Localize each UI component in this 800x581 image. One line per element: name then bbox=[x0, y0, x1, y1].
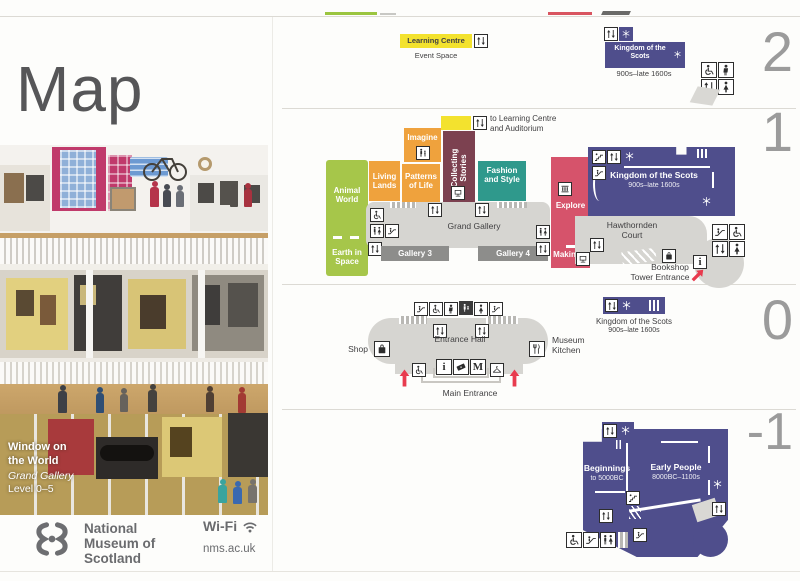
museum-map-leaflet: Map bbox=[0, 0, 800, 581]
iron-column bbox=[86, 270, 93, 362]
learning-centre-label: Learning Centre bbox=[400, 37, 472, 46]
shop-label: Shop bbox=[338, 345, 368, 355]
imagine-label: Imagine bbox=[404, 133, 441, 142]
visitor-figure bbox=[248, 485, 257, 503]
map-wall-mark bbox=[705, 149, 707, 158]
snowflake-icon bbox=[620, 299, 633, 312]
kingdom-l1-label: Kingdom of the Scots bbox=[598, 171, 710, 181]
toilets-icon bbox=[370, 224, 384, 238]
kingdom-l0-label: Kingdom of the Scots bbox=[587, 317, 681, 326]
visitor-figure bbox=[150, 187, 159, 207]
info-icon: i bbox=[436, 359, 452, 375]
snowflake-icon bbox=[619, 27, 633, 41]
page-top-edge bbox=[0, 16, 800, 17]
visitor-figure bbox=[163, 190, 171, 207]
main-entrance-arrow bbox=[508, 366, 521, 390]
snowflake-icon bbox=[673, 50, 682, 59]
scan-artifact bbox=[548, 12, 592, 15]
motorbike-exhibit bbox=[100, 445, 154, 461]
stair-landing-shape bbox=[690, 86, 721, 105]
lift-icon bbox=[473, 116, 487, 130]
brand-name-line3: Scotland bbox=[84, 551, 155, 566]
snowflake-icon bbox=[619, 424, 632, 437]
photo-detail bbox=[228, 413, 268, 477]
map-wall-mark bbox=[697, 149, 699, 158]
main-entrance-arrow bbox=[398, 366, 411, 390]
photo-caption-title-line2: the World bbox=[8, 455, 59, 469]
photo-caption-title-line1: Window on bbox=[8, 441, 67, 455]
gallery-3-label: Gallery 3 bbox=[381, 249, 449, 258]
lift-icon bbox=[599, 509, 613, 523]
scan-artifact bbox=[380, 13, 396, 15]
map-wall-line bbox=[661, 441, 698, 443]
wheelchair-icon bbox=[701, 62, 717, 78]
photo-caption-level: Level 0–5 bbox=[8, 483, 54, 496]
bridge-hatch bbox=[497, 202, 527, 208]
map-wall-mark bbox=[657, 300, 659, 311]
map-wall-line bbox=[708, 480, 710, 495]
map-wall-line bbox=[712, 172, 714, 188]
stairs-icon bbox=[592, 150, 606, 164]
iron-column bbox=[198, 270, 205, 362]
lift-icon bbox=[604, 27, 618, 41]
scan-artifact bbox=[601, 11, 631, 15]
and-auditorium-note: and Auditorium bbox=[490, 124, 602, 133]
lift-icon bbox=[607, 150, 621, 164]
stairs-icon bbox=[626, 491, 640, 505]
beginnings-label: Beginnings bbox=[582, 464, 632, 474]
escalator-icon bbox=[414, 302, 428, 316]
bridge-hatch bbox=[399, 316, 427, 324]
entrance-hall-label: Entrance Hall bbox=[425, 335, 495, 345]
wheelchair-icon bbox=[429, 302, 443, 316]
fold-line bbox=[272, 17, 273, 571]
nms-logo bbox=[28, 518, 76, 560]
escalator-icon bbox=[489, 302, 503, 316]
map-wall-mark bbox=[566, 245, 575, 248]
visitor-figure bbox=[244, 189, 252, 207]
tickets-icon bbox=[453, 359, 469, 375]
floor1-number: 1 bbox=[735, 104, 793, 160]
stair-hatch bbox=[629, 506, 641, 519]
visitor-figure bbox=[148, 390, 157, 412]
escalator-icon bbox=[583, 532, 599, 548]
photo-detail bbox=[140, 295, 166, 329]
page-title: Map bbox=[16, 52, 144, 126]
mens-toilet-icon bbox=[444, 302, 458, 316]
wheelchair-icon bbox=[370, 208, 384, 222]
brand-name: National Museum of Scotland bbox=[84, 521, 155, 566]
brand-name-line2: Museum of bbox=[84, 536, 155, 551]
escalator-icon bbox=[633, 528, 647, 542]
gallery-floor bbox=[0, 384, 268, 414]
floor-minus1-number: -1 bbox=[728, 406, 793, 458]
map-wall-line bbox=[595, 491, 625, 493]
photo-detail bbox=[110, 187, 136, 211]
womens-toilet-icon bbox=[729, 241, 745, 257]
website-url: nms.ac.uk bbox=[203, 543, 255, 555]
bicycle-exhibit bbox=[140, 149, 192, 183]
lift-icon bbox=[536, 242, 550, 256]
lift-icon bbox=[712, 502, 726, 516]
lift-icon bbox=[603, 424, 617, 438]
toilets-icon bbox=[600, 532, 616, 548]
map-wall-line bbox=[708, 446, 710, 463]
lift-icon bbox=[368, 242, 382, 256]
photo-detail bbox=[26, 175, 44, 201]
visitor-figure bbox=[96, 393, 104, 413]
stair-hatch bbox=[616, 440, 623, 449]
map-wall-mark bbox=[701, 149, 703, 158]
floor2-number: 2 bbox=[735, 24, 793, 80]
photo-detail bbox=[198, 183, 214, 203]
visitor-figure bbox=[218, 485, 227, 503]
mens-toilet-icon bbox=[718, 62, 734, 78]
earth-in-space-label: Earth in Space bbox=[326, 248, 368, 266]
beginnings-era-label: to 5000BC bbox=[582, 475, 632, 483]
visitor-figure bbox=[238, 393, 246, 413]
stair-hatch bbox=[618, 532, 628, 548]
tower-entrance-label: Tower Entrance bbox=[628, 273, 692, 283]
bridge-hatch bbox=[390, 202, 416, 208]
family-gallery-icon bbox=[416, 146, 430, 160]
grand-gallery-label: Grand Gallery bbox=[428, 222, 520, 232]
kingdom-label: Kingdom of the Scots bbox=[611, 45, 669, 61]
animal-world-label: Animal World bbox=[326, 186, 368, 204]
exhibit-icon bbox=[576, 252, 590, 266]
balustrade bbox=[0, 238, 268, 264]
escalator-icon bbox=[712, 224, 728, 240]
photo-detail bbox=[40, 295, 56, 325]
lift-icon bbox=[712, 241, 728, 257]
photo-detail bbox=[16, 290, 34, 316]
visitor-figure bbox=[233, 487, 242, 504]
living-lands-label: Living Lands bbox=[369, 172, 400, 190]
tower-basement-shape bbox=[693, 522, 728, 557]
early-people-label: Early People bbox=[648, 463, 704, 473]
snowflake-icon bbox=[700, 195, 713, 208]
brand-name-line1: National bbox=[84, 521, 155, 536]
bridge-hatch bbox=[486, 316, 518, 324]
kingdom-era-label: 900s–late 1600s bbox=[592, 70, 696, 79]
hands-on-icon bbox=[451, 186, 465, 200]
explore-label: Explore bbox=[551, 201, 590, 210]
wheelchair-icon bbox=[729, 224, 745, 240]
snowflake-icon bbox=[711, 478, 724, 491]
early-people-era-label: 8000BC–1100s bbox=[642, 474, 710, 482]
snowflake-icon bbox=[623, 150, 636, 163]
visitor-figure bbox=[58, 391, 67, 413]
clock-exhibit bbox=[198, 157, 212, 171]
lift-icon bbox=[475, 203, 489, 217]
map-wall-mark bbox=[649, 300, 651, 311]
to-learning-centre-note: to Learning Centre bbox=[490, 114, 602, 123]
hawthornden-court-label: Hawthornden Court bbox=[596, 221, 668, 241]
museum-kitchen-label: Museum Kitchen bbox=[552, 336, 600, 356]
visitor-figure bbox=[206, 392, 214, 412]
lift-icon bbox=[474, 34, 488, 48]
visitor-figure bbox=[230, 190, 238, 207]
meeting-point-icon: M bbox=[470, 359, 486, 375]
grand-gallery-photo: Window on the World Grand Gallery Level … bbox=[0, 145, 268, 515]
photo-detail bbox=[170, 427, 192, 457]
photo-detail bbox=[4, 173, 24, 203]
lift-icon bbox=[590, 238, 604, 252]
learning-centre-link bbox=[441, 116, 471, 130]
fashion-style-label: Fashion and Style bbox=[484, 166, 520, 184]
wifi-label: Wi-Fi bbox=[203, 518, 237, 534]
map-wall-line bbox=[624, 166, 710, 168]
kingdom-l0-era-label: 900s–late 1600s bbox=[600, 327, 668, 335]
map-wall-mark bbox=[350, 236, 359, 239]
shop-bag-icon bbox=[662, 249, 676, 263]
visitor-figure bbox=[120, 394, 128, 412]
floor2-divider bbox=[282, 108, 796, 109]
museum-kitchen-icon bbox=[529, 341, 545, 357]
main-entrance-label: Main Entrance bbox=[424, 389, 516, 399]
visitor-figure bbox=[176, 191, 184, 207]
womens-toilet-icon bbox=[474, 302, 488, 316]
balustrade bbox=[0, 362, 268, 384]
wheelchair-icon bbox=[412, 363, 426, 377]
escalator-icon bbox=[385, 224, 399, 238]
page-bottom-edge bbox=[0, 571, 800, 572]
toilets-icon bbox=[536, 225, 550, 239]
map-wall-mark bbox=[333, 236, 342, 239]
lift-icon bbox=[428, 203, 442, 217]
floor0-divider bbox=[282, 409, 796, 410]
wifi-icon bbox=[241, 517, 259, 535]
map-wall-mark bbox=[653, 300, 655, 311]
room-kingdom-of-scots-l2: Kingdom of the Scots bbox=[605, 42, 685, 68]
womens-toilet-icon bbox=[718, 79, 734, 95]
patterns-of-life-label: Patterns of Life bbox=[402, 172, 440, 190]
cloakroom-icon bbox=[490, 363, 504, 377]
scan-artifact bbox=[325, 12, 377, 15]
event-space-label: Event Space bbox=[398, 52, 474, 61]
kingdom-l1-era-label: 900s–late 1600s bbox=[604, 182, 704, 190]
baby-change-icon bbox=[459, 301, 473, 315]
shop-bag-icon bbox=[374, 341, 390, 357]
photo-detail bbox=[228, 283, 258, 327]
photo-detail bbox=[60, 150, 96, 208]
lift-icon bbox=[605, 299, 618, 312]
floor0-number: 0 bbox=[735, 292, 793, 348]
science-gallery-icon bbox=[558, 182, 572, 196]
photo-caption-gallery: Grand Gallery bbox=[8, 470, 73, 483]
wheelchair-icon bbox=[566, 532, 582, 548]
